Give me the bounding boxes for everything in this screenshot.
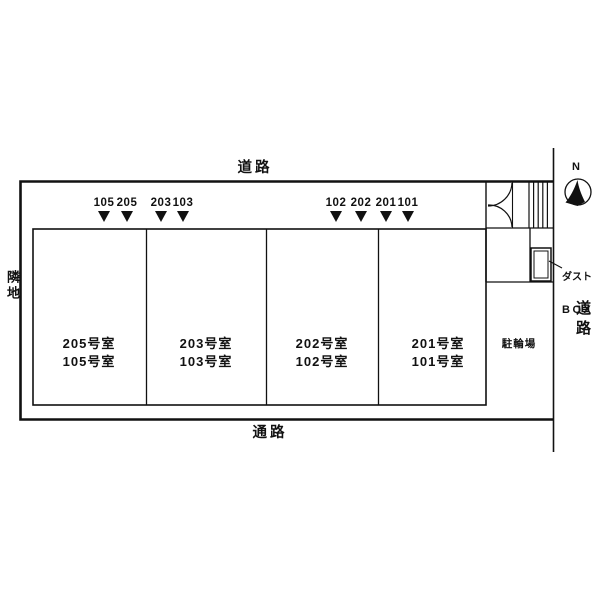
room-label-lower: 101号室 — [383, 353, 493, 371]
room-label-lower: 102号室 — [267, 353, 377, 371]
stall-arrow-icon — [121, 211, 133, 222]
stall-number: 103 — [166, 197, 200, 209]
room-label-upper: 205号室 — [34, 335, 144, 353]
entrance-double-door-icon — [488, 183, 512, 227]
passage-label-bottom: 通路 — [240, 421, 300, 442]
neighbor-land-label: 隣地 — [3, 270, 22, 302]
stall-number: 101 — [391, 197, 425, 209]
site-plan: 道路 通路 隣地 道路 駐輪場 ダスト BOX N 105 205 203 10… — [0, 0, 600, 600]
room-label-lower: 105号室 — [34, 353, 144, 371]
parking-stall-205: 205 — [110, 197, 144, 222]
parking-stall-103: 103 — [166, 197, 200, 222]
dust-box — [531, 248, 551, 281]
room-label-upper: 201号室 — [383, 335, 493, 353]
room-202-102: 202号室 102号室 — [267, 335, 377, 371]
north-arrow-icon — [565, 179, 591, 206]
road-label-top: 道路 — [225, 156, 285, 177]
dust-box-label-line2: BOX — [562, 305, 593, 316]
north-label: N — [572, 161, 580, 173]
room-205-105: 205号室 105号室 — [34, 335, 144, 371]
building-outline — [33, 229, 486, 405]
room-label-upper: 202号室 — [267, 335, 377, 353]
stall-arrow-icon — [330, 211, 342, 222]
stall-arrow-icon — [402, 211, 414, 222]
stall-arrow-icon — [98, 211, 110, 222]
room-label-upper: 203号室 — [151, 335, 261, 353]
bike-parking-label: 駐輪場 — [486, 336, 552, 351]
parking-stall-101: 101 — [391, 197, 425, 222]
room-203-103: 203号室 103号室 — [151, 335, 261, 371]
room-label-lower: 103号室 — [151, 353, 261, 371]
stall-number: 205 — [110, 197, 144, 209]
dust-box-label-line1: ダスト — [562, 272, 593, 283]
stall-arrow-icon — [355, 211, 367, 222]
stall-arrow-icon — [177, 211, 189, 222]
stairs-icon — [529, 182, 547, 229]
room-201-101: 201号室 101号室 — [383, 335, 493, 371]
plan-linework — [0, 0, 600, 600]
